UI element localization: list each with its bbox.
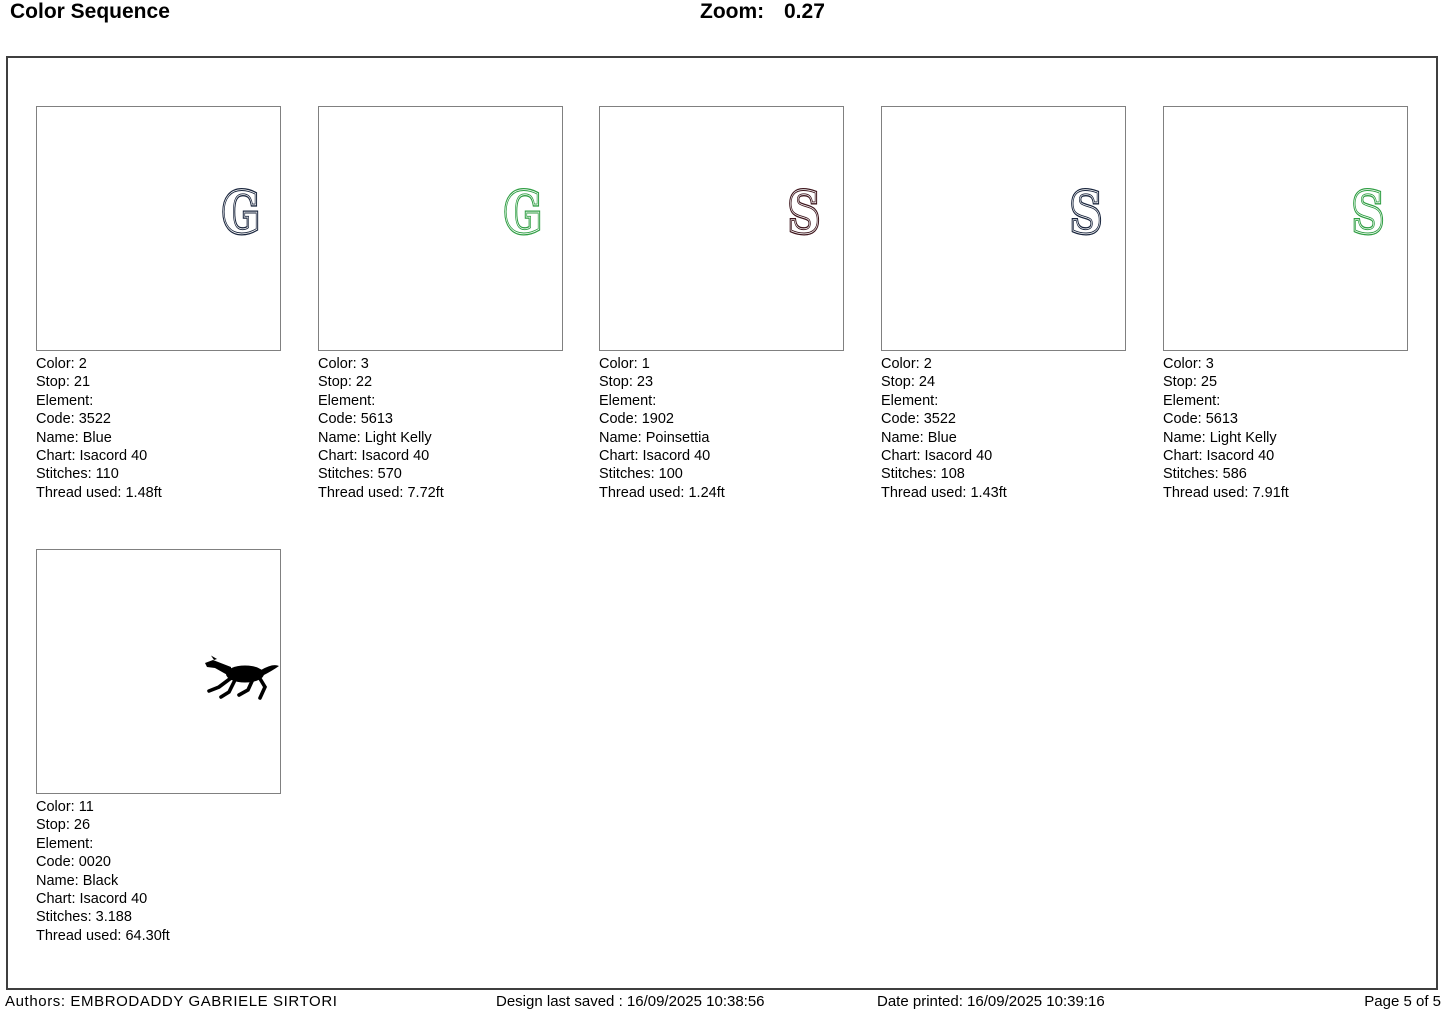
thread-info: Color: 1 Stop: 23 Element: Code: 1902 Na… [599, 355, 879, 502]
stop-line: Stop: 25 [1163, 373, 1443, 391]
code-line: Code: 5613 [318, 410, 598, 428]
color-sequence-report-page: Color Sequence Zoom: 0.27 G G G Color: 2… [0, 0, 1445, 1012]
code-line: Code: 3522 [36, 410, 316, 428]
zoom-label: Zoom: [700, 0, 764, 24]
element-line: Element: [36, 392, 316, 410]
galloping-horse-icon [201, 654, 281, 704]
chart-line: Chart: Isacord 40 [599, 447, 879, 465]
stitch-preview-box: G G G [318, 106, 563, 351]
stitch-preview-box: S S S [1163, 106, 1408, 351]
thread-line: Thread used: 1.43ft [881, 484, 1161, 502]
element-line: Element: [599, 392, 879, 410]
name-line: Name: Light Kelly [318, 429, 598, 447]
stitch-preview-box: S S S [881, 106, 1126, 351]
color-line: Color: 2 [36, 355, 316, 373]
code-line: Code: 5613 [1163, 410, 1443, 428]
stitches-line: Stitches: 100 [599, 465, 879, 483]
color-step-card-2: G G G Color: 3 Stop: 22 Element: Code: 5… [318, 106, 598, 502]
color-line: Color: 3 [1163, 355, 1443, 373]
footer-date-printed: Date printed: 16/09/2025 10:39:16 [877, 993, 1105, 1010]
chart-line: Chart: Isacord 40 [1163, 447, 1443, 465]
stitch-preview-box: S S S [599, 106, 844, 351]
thread-info: Color: 2 Stop: 24 Element: Code: 3522 Na… [881, 355, 1161, 502]
color-step-card-6: Color: 11 Stop: 26 Element: Code: 0020 N… [36, 549, 316, 945]
stop-line: Stop: 23 [599, 373, 879, 391]
letter-inner-line: G [222, 185, 259, 245]
stitches-line: Stitches: 570 [318, 465, 598, 483]
stitches-line: Stitches: 3.188 [36, 908, 316, 926]
stop-line: Stop: 21 [36, 373, 316, 391]
chart-line: Chart: Isacord 40 [36, 890, 316, 908]
letter-inner-line: S [788, 185, 820, 245]
color-line: Color: 1 [599, 355, 879, 373]
color-line: Color: 3 [318, 355, 598, 373]
letter-inner-line: G [504, 185, 541, 245]
letter-s-navy-icon: S S S [1056, 185, 1116, 245]
footer-last-saved: Design last saved : 16/09/2025 10:38:56 [496, 993, 765, 1010]
element-line: Element: [36, 835, 316, 853]
letter-s-green-icon: S S S [1338, 185, 1398, 245]
chart-line: Chart: Isacord 40 [318, 447, 598, 465]
letter-g-green-icon: G G G [493, 185, 553, 245]
element-line: Element: [1163, 392, 1443, 410]
thread-info: Color: 3 Stop: 22 Element: Code: 5613 Na… [318, 355, 598, 502]
stitches-line: Stitches: 586 [1163, 465, 1443, 483]
page-title: Color Sequence [10, 0, 170, 24]
element-line: Element: [881, 392, 1161, 410]
name-line: Name: Blue [36, 429, 316, 447]
letter-inner-line: S [1070, 185, 1102, 245]
code-line: Code: 0020 [36, 853, 316, 871]
stitches-line: Stitches: 108 [881, 465, 1161, 483]
name-line: Name: Light Kelly [1163, 429, 1443, 447]
stitch-preview-box: G G G [36, 106, 281, 351]
name-line: Name: Poinsettia [599, 429, 879, 447]
letter-inner-line: S [1352, 185, 1384, 245]
element-line: Element: [318, 392, 598, 410]
thread-line: Thread used: 64.30ft [36, 927, 316, 945]
chart-line: Chart: Isacord 40 [36, 447, 316, 465]
name-line: Name: Blue [881, 429, 1161, 447]
color-step-card-4: S S S Color: 2 Stop: 24 Element: Code: 3… [881, 106, 1161, 502]
color-step-card-3: S S S Color: 1 Stop: 23 Element: Code: 1… [599, 106, 879, 502]
color-line: Color: 2 [881, 355, 1161, 373]
color-step-card-5: S S S Color: 3 Stop: 25 Element: Code: 5… [1163, 106, 1443, 502]
letter-g-navy-icon: G G G [211, 185, 271, 245]
stitches-line: Stitches: 110 [36, 465, 316, 483]
letter-s-maroon-icon: S S S [774, 185, 834, 245]
thread-info: Color: 3 Stop: 25 Element: Code: 5613 Na… [1163, 355, 1443, 502]
stop-line: Stop: 26 [36, 816, 316, 834]
color-step-card-1: G G G Color: 2 Stop: 21 Element: Code: 3… [36, 106, 316, 502]
thread-info: Color: 2 Stop: 21 Element: Code: 3522 Na… [36, 355, 316, 502]
thread-line: Thread used: 7.91ft [1163, 484, 1443, 502]
name-line: Name: Black [36, 872, 316, 890]
thread-line: Thread used: 1.48ft [36, 484, 316, 502]
thread-info: Color: 11 Stop: 26 Element: Code: 0020 N… [36, 798, 316, 945]
thread-line: Thread used: 1.24ft [599, 484, 879, 502]
footer-page-number: Page 5 of 5 [1364, 993, 1441, 1010]
stop-line: Stop: 22 [318, 373, 598, 391]
stitch-preview-box [36, 549, 281, 794]
zoom-value: 0.27 [784, 0, 825, 24]
thread-line: Thread used: 7.72ft [318, 484, 598, 502]
code-line: Code: 1902 [599, 410, 879, 428]
stop-line: Stop: 24 [881, 373, 1161, 391]
code-line: Code: 3522 [881, 410, 1161, 428]
color-line: Color: 11 [36, 798, 316, 816]
footer-authors: Authors: EMBRODADDY GABRIELE SIRTORI [5, 993, 338, 1010]
chart-line: Chart: Isacord 40 [881, 447, 1161, 465]
